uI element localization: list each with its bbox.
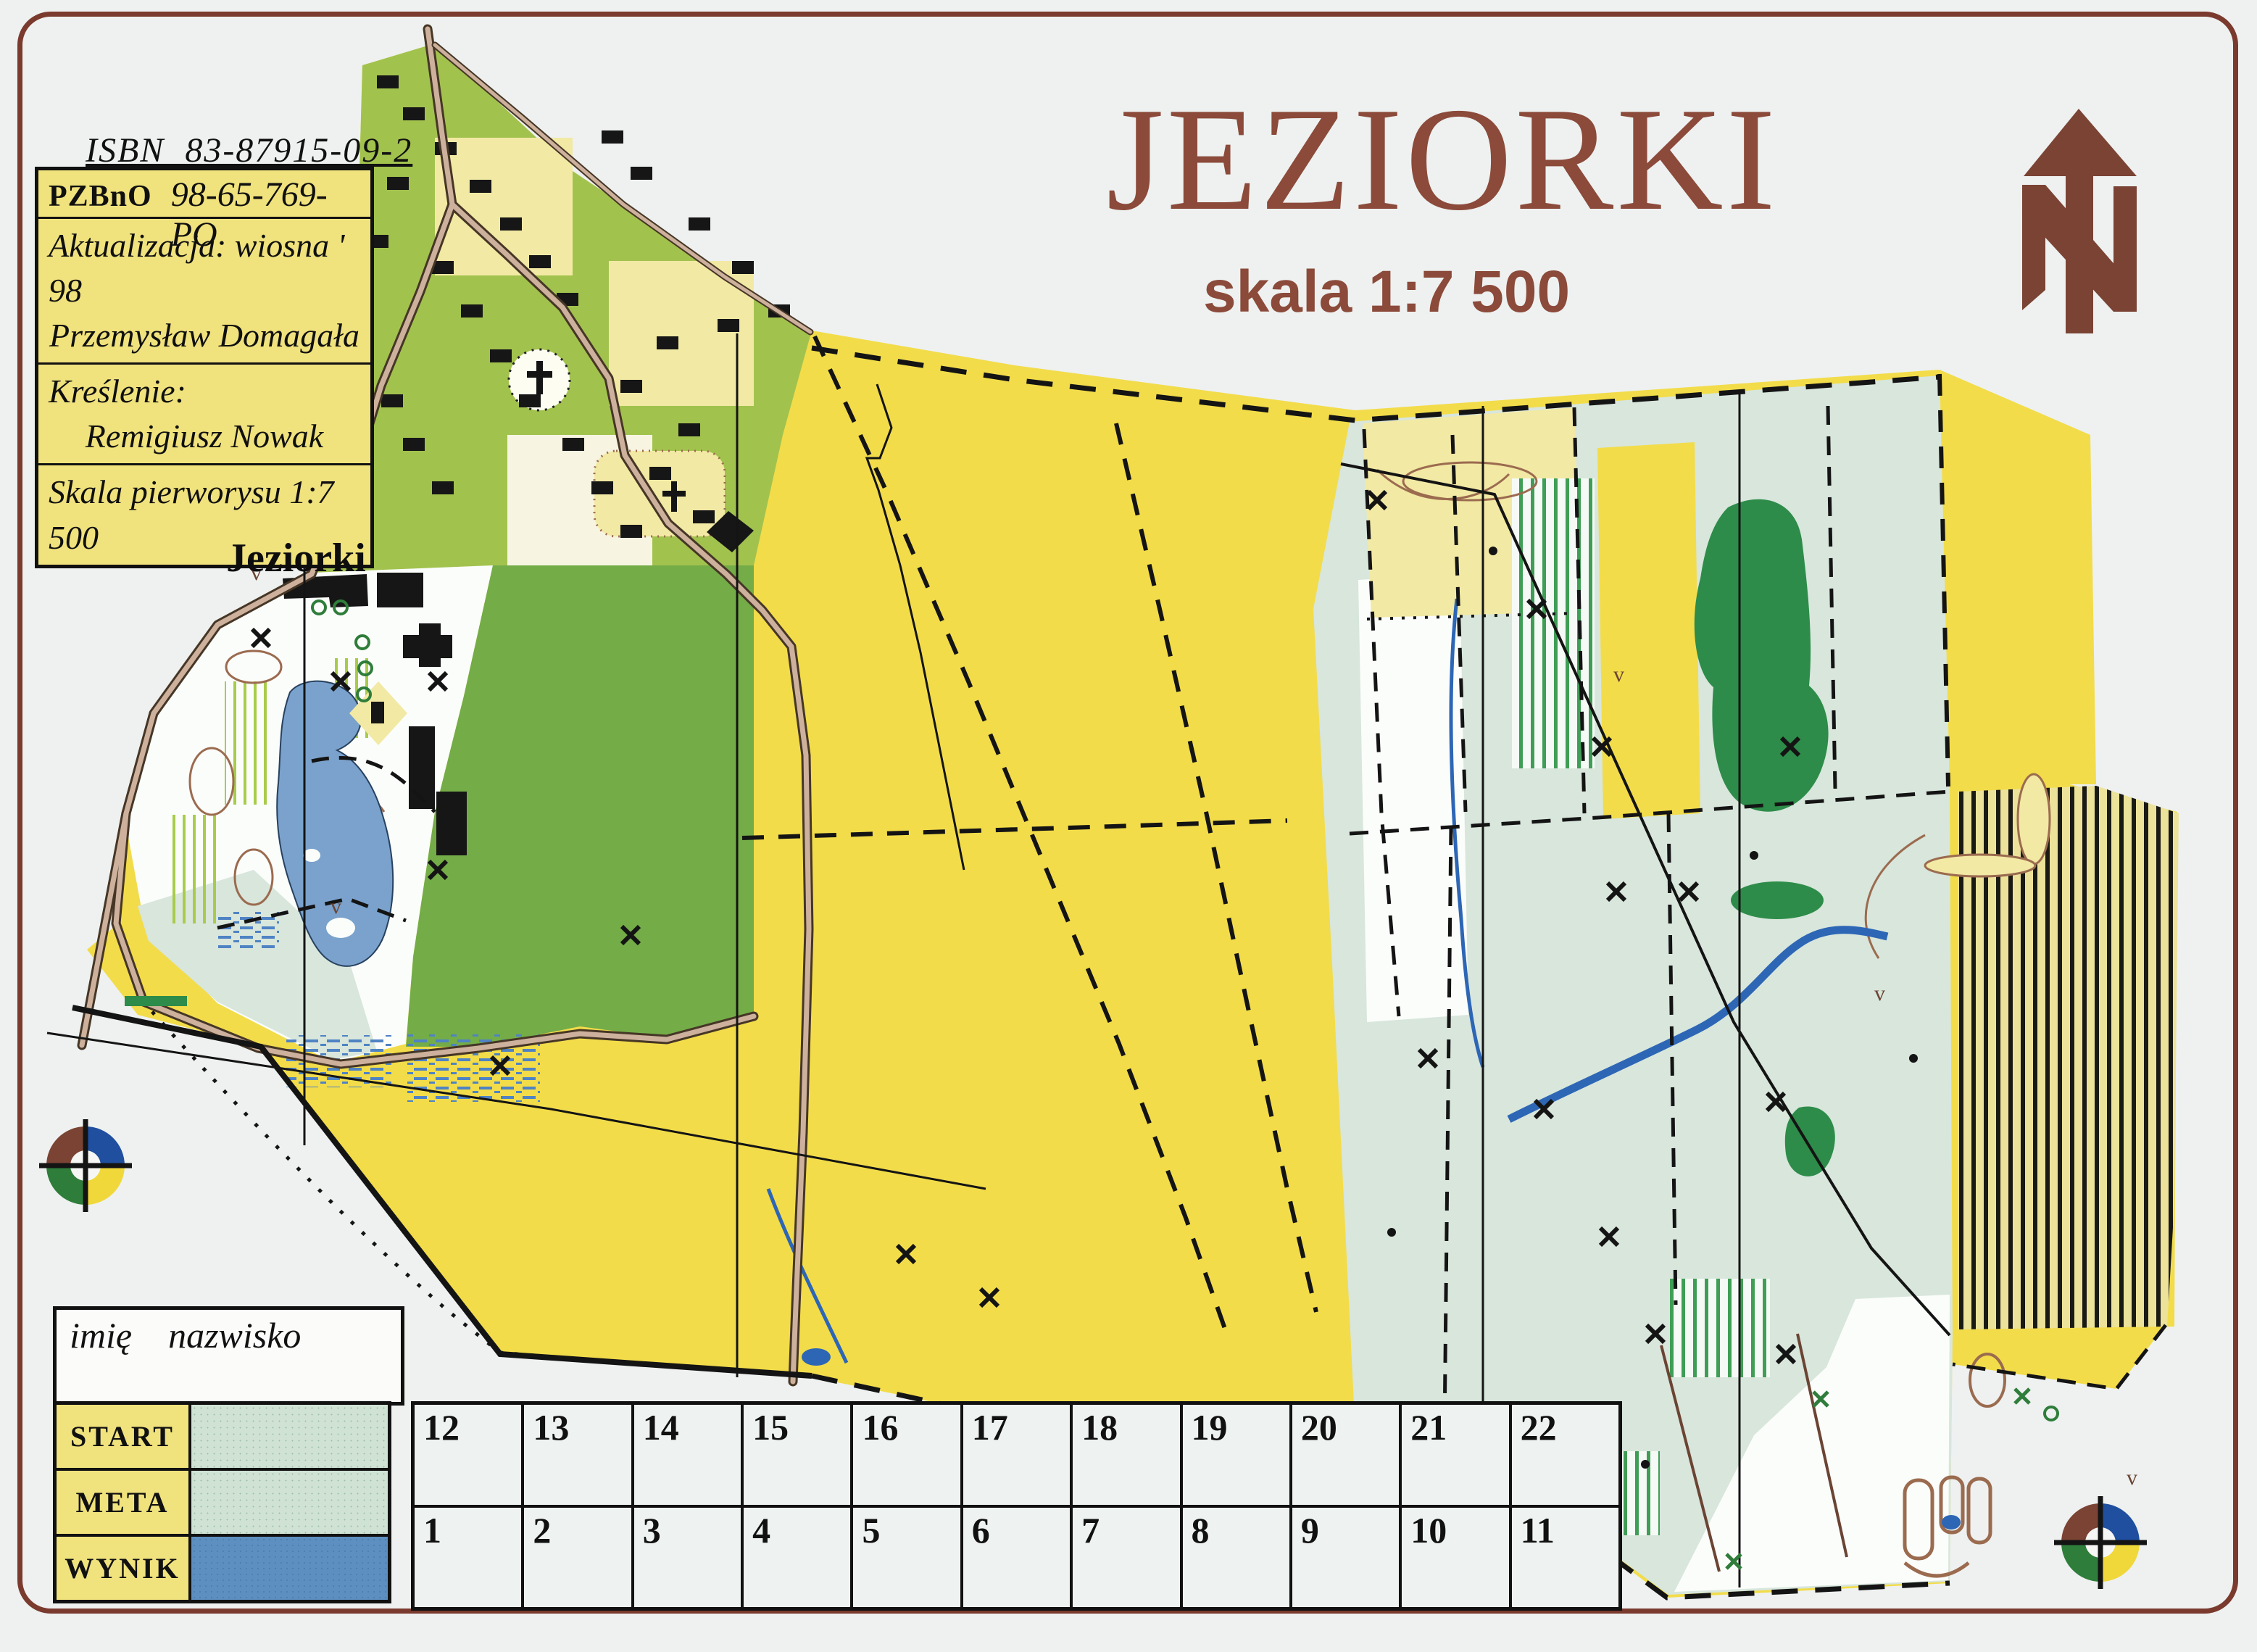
control-cell-22: 22 <box>1509 1405 1618 1505</box>
control-number: 13 <box>533 1406 569 1448</box>
control-number: 8 <box>1192 1509 1210 1551</box>
control-number: 17 <box>972 1406 1008 1448</box>
drawing-label: Kreślenie: <box>49 369 360 414</box>
village-name-label: Jeziorki <box>226 535 366 581</box>
control-number: 15 <box>752 1406 789 1448</box>
map-info-box: PZBnO 98-65-769-PO Aktualizacja: wiosna … <box>35 167 374 568</box>
control-number: 19 <box>1192 1406 1228 1448</box>
control-grid-top-row: 1213141516171819202122 <box>415 1405 1618 1505</box>
federation-code: PZBnO <box>49 179 152 214</box>
control-cell-5: 5 <box>850 1508 960 1608</box>
wynik-value-cell <box>191 1537 388 1600</box>
control-number: 9 <box>1301 1509 1319 1551</box>
control-number: 14 <box>643 1406 679 1448</box>
competitor-name-box: imię nazwisko <box>53 1306 404 1406</box>
control-cell-2: 2 <box>521 1508 631 1608</box>
control-cell-4: 4 <box>741 1508 850 1608</box>
control-cell-7: 7 <box>1070 1508 1179 1608</box>
control-number: 18 <box>1081 1406 1118 1448</box>
control-cell-11: 11 <box>1509 1508 1618 1608</box>
control-number: 3 <box>643 1509 661 1551</box>
svg-text:v: v <box>331 895 341 918</box>
club-logo-left <box>39 1119 132 1212</box>
maze-pond <box>1942 1515 1961 1529</box>
start-label: START <box>57 1405 191 1468</box>
control-number: 5 <box>862 1509 880 1551</box>
control-number: 22 <box>1521 1406 1557 1448</box>
wynik-label: WYNIK <box>57 1537 191 1600</box>
control-cell-21: 21 <box>1399 1405 1508 1505</box>
control-cell-6: 6 <box>960 1508 1070 1608</box>
update-info: Aktualizacja: wiosna ' 98 <box>49 223 360 313</box>
control-grid-bottom-row: 1234567891011 <box>415 1505 1618 1608</box>
start-row: START <box>57 1405 388 1468</box>
control-number: 4 <box>752 1509 770 1551</box>
control-number: 2 <box>533 1509 551 1551</box>
control-cell-19: 19 <box>1180 1405 1289 1505</box>
control-cell-15: 15 <box>741 1405 850 1505</box>
map-sheet: vv vv v ISBN 83-87915-09-2 PZBnO 98-65-7… <box>0 0 2257 1652</box>
control-number: 1 <box>423 1509 441 1551</box>
control-cell-10: 10 <box>1399 1508 1508 1608</box>
control-number: 16 <box>862 1406 898 1448</box>
control-cell-8: 8 <box>1180 1508 1289 1608</box>
control-number: 21 <box>1410 1406 1447 1448</box>
control-cell-12: 12 <box>415 1405 521 1505</box>
control-number: 11 <box>1521 1509 1555 1551</box>
drawing-author: Remigiusz Nowak <box>49 414 360 459</box>
meta-label: META <box>57 1471 191 1534</box>
isbn-text: ISBN 83-87915-09-2 <box>86 130 412 170</box>
update-author: Przemysław Domagała <box>49 313 360 358</box>
control-cell-20: 20 <box>1289 1405 1399 1505</box>
control-cell-1: 1 <box>415 1508 521 1608</box>
control-number: 12 <box>423 1406 460 1448</box>
svg-text:v: v <box>1613 663 1624 686</box>
control-number: 7 <box>1081 1509 1100 1551</box>
cultivated-striped-block <box>1925 774 2179 1329</box>
control-cell-16: 16 <box>850 1405 960 1505</box>
scale-label: skala 1:7 500 <box>1203 258 1570 326</box>
svg-text:v: v <box>1874 981 1885 1005</box>
control-cell-13: 13 <box>521 1405 631 1505</box>
control-number: 6 <box>972 1509 990 1551</box>
north-arrow-icon <box>2022 109 2137 333</box>
control-cell-18: 18 <box>1070 1405 1179 1505</box>
svg-text:v: v <box>2127 1466 2137 1490</box>
meta-row: META <box>57 1468 388 1534</box>
club-logo-right <box>2054 1496 2147 1589</box>
control-number: 10 <box>1410 1509 1447 1551</box>
wynik-row: WYNIK <box>57 1534 388 1600</box>
map-title: JEZIORKI <box>1029 86 1855 233</box>
control-cell-3: 3 <box>631 1508 741 1608</box>
meta-value-cell <box>191 1471 388 1534</box>
control-number: 20 <box>1301 1406 1337 1448</box>
small-pond <box>802 1348 831 1366</box>
start-value-cell <box>191 1405 388 1468</box>
control-cell-17: 17 <box>960 1405 1070 1505</box>
control-cell-9: 9 <box>1289 1508 1399 1608</box>
control-cell-14: 14 <box>631 1405 741 1505</box>
result-rows: START META WYNIK <box>53 1401 391 1603</box>
dark-green-bar <box>125 996 187 1006</box>
control-grid: 1213141516171819202122 1234567891011 <box>411 1401 1622 1611</box>
